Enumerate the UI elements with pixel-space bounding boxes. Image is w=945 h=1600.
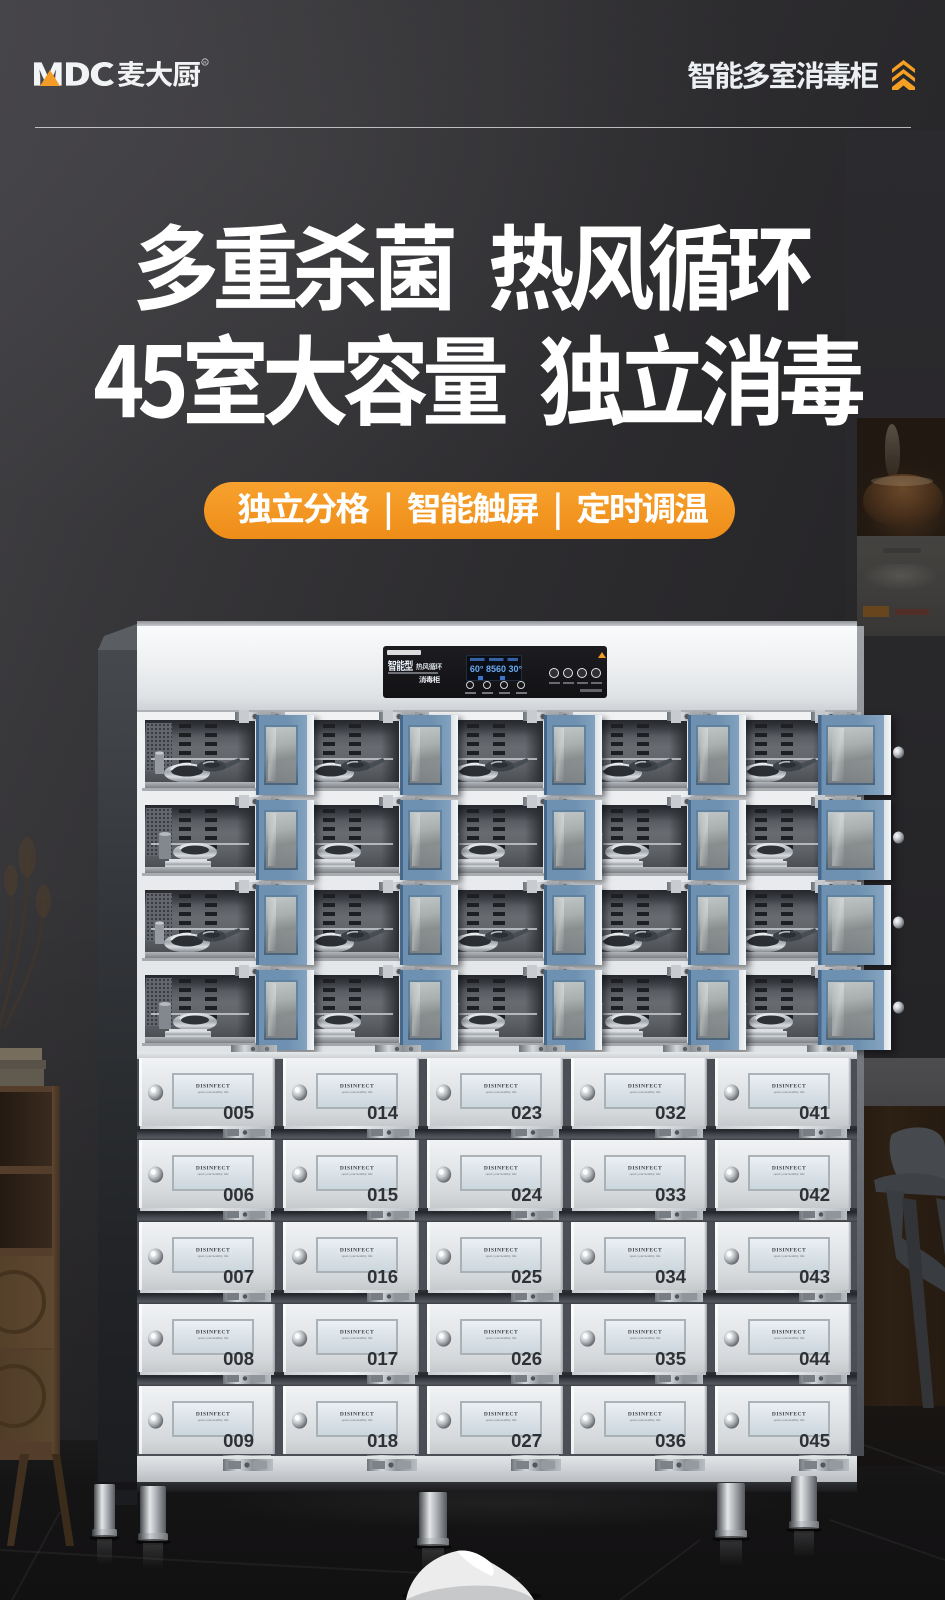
svg-text:R: R (203, 60, 207, 66)
